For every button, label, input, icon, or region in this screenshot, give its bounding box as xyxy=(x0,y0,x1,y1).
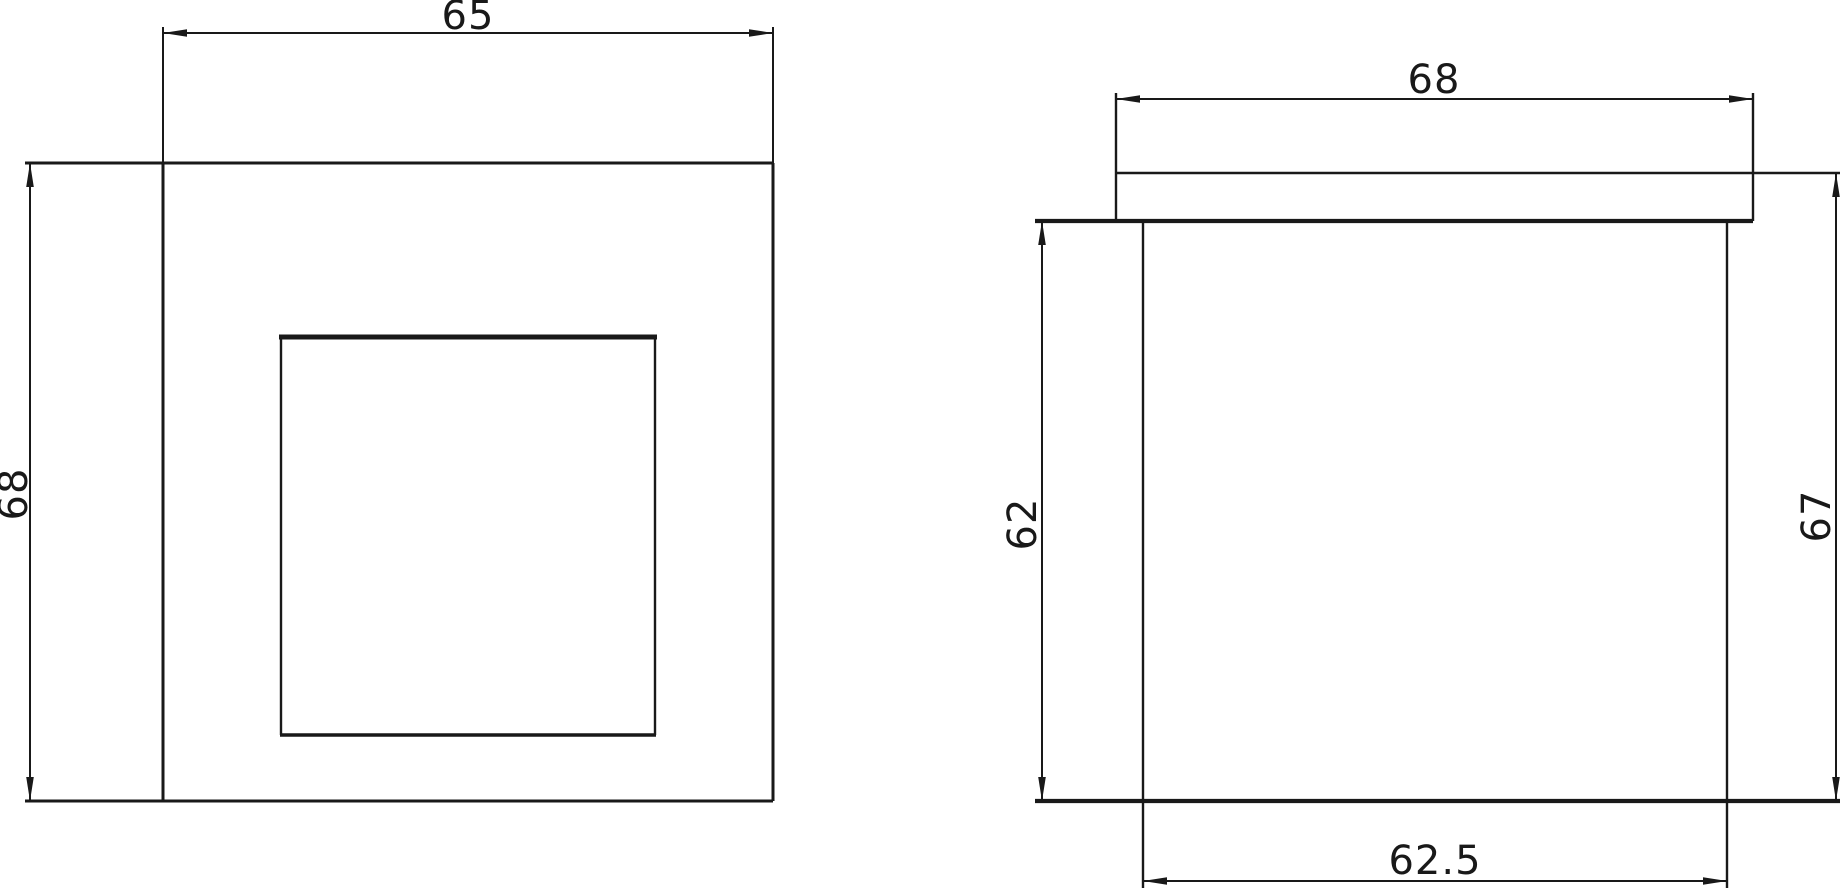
dim-front-width-label: 65 xyxy=(442,0,495,39)
dim-side-overall-height: 67 xyxy=(1794,173,1840,801)
dim-front-height: 68 xyxy=(0,163,37,801)
dim-side-body-width: 62.5 xyxy=(1143,838,1727,884)
dim-side-body-height: 62 xyxy=(1000,221,1046,801)
dim-side-flange-width: 68 xyxy=(1116,57,1753,103)
dim-front-width: 65 xyxy=(163,0,773,163)
dim-side-overall-height-label: 67 xyxy=(1794,490,1840,543)
side-view: 68 62 67 62.5 xyxy=(1000,57,1840,888)
drawing-page: 65 68 68 xyxy=(0,0,1848,896)
dim-side-body-height-label: 62 xyxy=(1000,498,1046,551)
dim-front-height-label: 68 xyxy=(0,468,37,521)
front-view: 65 68 xyxy=(0,0,773,801)
cad-drawing-canvas: 65 68 68 xyxy=(0,0,1848,896)
dim-side-flange-width-label: 68 xyxy=(1408,57,1461,103)
dim-side-body-width-label: 62.5 xyxy=(1388,838,1481,884)
